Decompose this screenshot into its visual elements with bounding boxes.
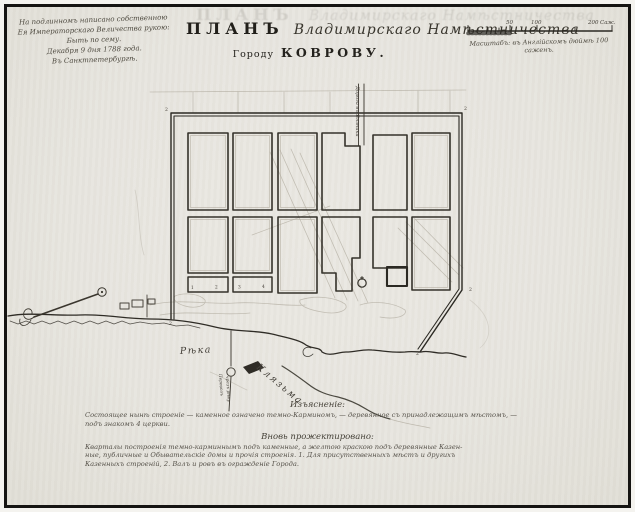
- block-number: 1: [191, 286, 194, 291]
- city-block: [322, 133, 360, 210]
- public-building-block: [387, 267, 407, 286]
- river-shoreline: [8, 314, 466, 357]
- city-block: [233, 217, 272, 273]
- city-block: [188, 277, 228, 292]
- legend: Изъясненіе: Состоящее нынѣ строеніе — ка…: [85, 400, 550, 469]
- outside-structures: [120, 295, 155, 317]
- scale-bar-ticks: [468, 26, 612, 32]
- scale-bar: 50 100 200 Саж.: [468, 20, 616, 33]
- scale-label-100: 100: [531, 20, 542, 26]
- rampart-mark: 2: [169, 321, 172, 327]
- city-block: [322, 217, 360, 291]
- city-blocks-row3: [188, 277, 272, 292]
- map-sheet: На подлинномъ написано собственною Ея Им…: [0, 0, 635, 512]
- legend-projected-line: ные, публичные и Обывательскіе домы и пр…: [85, 451, 550, 460]
- scale-label-200: 200: [587, 20, 599, 26]
- city-block: [412, 217, 450, 290]
- city-block: [412, 133, 450, 210]
- rampart-mark: 2: [165, 107, 168, 113]
- city-block: [373, 217, 407, 268]
- city-block: [278, 133, 317, 210]
- city-block: [233, 133, 272, 210]
- block-number: 3: [238, 286, 241, 291]
- block-number: 2: [215, 286, 218, 291]
- ferry-label-1: Перевозъ: [217, 373, 224, 396]
- scale-label-50: 50: [506, 20, 513, 26]
- rampart-mark: 2: [464, 106, 467, 112]
- city-block: [188, 133, 228, 210]
- block-number: 4: [262, 285, 265, 290]
- river-word-label: Рѣка: [179, 344, 213, 357]
- scale-unit: Саж.: [600, 20, 616, 26]
- road-north-label: Дорога въ Вязники: [354, 85, 360, 137]
- city-block: [278, 217, 317, 293]
- legend-existing-line: Состоящее нынѣ строеніе — каменное означ…: [85, 411, 550, 420]
- legend-heading-existing: Изъясненіе:: [85, 400, 550, 410]
- legend-projected-line: Казенныхъ строеній, 2. Валъ и ровъ въ ог…: [85, 460, 550, 469]
- city-blocks-row1: [188, 133, 450, 210]
- legend-projected-line: Кварталы построенія темно-карминнымъ под…: [85, 443, 550, 452]
- city-block: [373, 135, 407, 210]
- ferry-label-2: чрезъ рѣку: [224, 376, 231, 403]
- church-symbol: [358, 277, 366, 288]
- compass-icon: [20, 288, 106, 326]
- rampart-mark: 2: [469, 287, 472, 293]
- city-block: [188, 217, 228, 273]
- legend-existing-line: подъ знакомъ 4 церкви.: [85, 420, 550, 429]
- legend-heading-projected: Вновь прожектировано:: [85, 432, 550, 442]
